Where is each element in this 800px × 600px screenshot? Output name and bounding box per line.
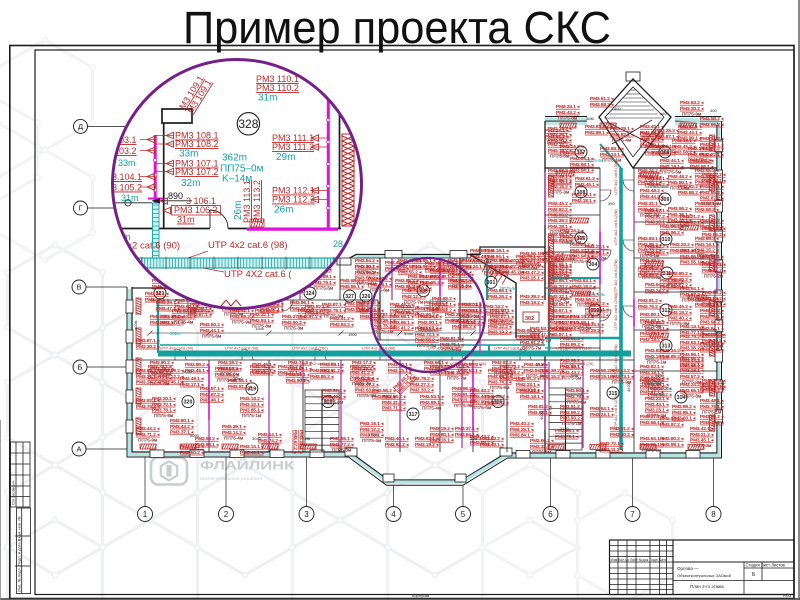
svg-text:PM3.53.2 ◂: PM3.53.2 ◂ (462, 258, 486, 263)
svg-text:PM3.15.2 ◂: PM3.15.2 ◂ (570, 314, 594, 319)
svg-text:PM3.85.2 ◂: PM3.85.2 ◂ (310, 374, 334, 379)
svg-text:Пример проекта СКС: Пример проекта СКС (183, 2, 611, 53)
svg-text:PM3.16.2 ◂: PM3.16.2 ◂ (680, 248, 704, 253)
svg-text:PM3.96.2 ◂: PM3.96.2 ◂ (356, 306, 380, 311)
svg-text:PM3.95.1 ◂: PM3.95.1 ◂ (340, 284, 364, 289)
svg-text:PM3.91.2 ◂: PM3.91.2 ◂ (520, 340, 544, 345)
svg-text:А: А (76, 445, 81, 454)
svg-text:4020: 4020 (720, 380, 725, 390)
svg-text:PM3.57.1 ◂: PM3.57.1 ◂ (645, 208, 669, 213)
svg-text:PM3.85.2 ◂: PM3.85.2 ◂ (395, 278, 419, 283)
svg-text:PM3.94.2 ◂: PM3.94.2 ◂ (190, 308, 214, 313)
svg-text:PM3.90.2 ◂: PM3.90.2 ◂ (185, 362, 209, 367)
svg-text:PM3.92.2 ◂: PM3.92.2 ◂ (412, 264, 436, 269)
svg-text:327: 327 (345, 294, 354, 300)
svg-text:PM3.12.1 ◂: PM3.12.1 ◂ (548, 270, 572, 275)
svg-text:PM3.18.1 ◂: PM3.18.1 ◂ (672, 138, 696, 143)
svg-text:PM3.82.1 ◂: PM3.82.1 ◂ (572, 192, 596, 197)
svg-text:PM3.68.2 ◂: PM3.68.2 ◂ (678, 190, 702, 195)
svg-text:PM3.25.1 ◂: PM3.25.1 ◂ (520, 276, 544, 281)
svg-text:PM3.54.2 ◂: PM3.54.2 ◂ (355, 258, 379, 263)
svg-text:362m: 362m (222, 153, 247, 164)
svg-text:PM3 110.2: PM3 110.2 (256, 83, 299, 93)
svg-text:PM3.12.2 ◂: PM3.12.2 ◂ (488, 324, 512, 329)
svg-text:PM3.33.1 ◂: PM3.33.1 ◂ (530, 444, 554, 449)
svg-text:PM3.45.2 ◂: PM3.45.2 ◂ (672, 144, 696, 149)
svg-text:PM3.30.2 ◂: PM3.30.2 ◂ (610, 432, 634, 437)
svg-text:PM3.66.1 ◂: PM3.66.1 ◂ (645, 144, 669, 149)
svg-text:PM3.94.1 ◂: PM3.94.1 ◂ (524, 368, 548, 373)
svg-text:PM3.99.2 ◂: PM3.99.2 ◂ (560, 410, 584, 415)
svg-text:ПП75-6м: ПП75-6м (704, 344, 723, 349)
svg-text:PM3.86.1 ◂: PM3.86.1 ◂ (488, 258, 512, 263)
svg-text:PM3.60.2 ◂: PM3.60.2 ◂ (282, 320, 306, 325)
svg-text:ПП75-8м: ПП75-8м (152, 372, 171, 377)
svg-text:PM3.91.2 ◂: PM3.91.2 ◂ (638, 298, 662, 303)
svg-text:PM3.23.1 ◂: PM3.23.1 ◂ (645, 408, 669, 413)
svg-text:PM3.82.1 ◂: PM3.82.1 ◂ (645, 348, 669, 353)
svg-text:PM3.66.2 ◂: PM3.66.2 ◂ (530, 438, 554, 443)
svg-text:PM3.64.1 ◂: PM3.64.1 ◂ (640, 137, 664, 142)
svg-text:4: 4 (391, 510, 396, 519)
svg-text:PM3.57.2 ◂: PM3.57.2 ◂ (680, 374, 704, 379)
svg-text:План 2-го этажа: План 2-го этажа (690, 584, 724, 589)
svg-text:PM3.22.2 ◂: PM3.22.2 ◂ (702, 172, 726, 177)
svg-text:7МБ: 7МБ (570, 373, 579, 378)
svg-text:PM3.46.2 ◂: PM3.46.2 ◂ (390, 302, 414, 307)
svg-text:PM3.96.1 ◂: PM3.96.1 ◂ (290, 300, 314, 305)
svg-text:PM3.93.1 ◂: PM3.93.1 ◂ (600, 146, 624, 151)
svg-text:26m: 26m (274, 205, 293, 216)
svg-text:328: 328 (238, 117, 258, 131)
svg-text:ПП75-3м: ПП75-3м (284, 326, 303, 331)
svg-text:PM3.61.2 ◂: PM3.61.2 ◂ (575, 176, 599, 181)
svg-text:PM3.24.1 ◂: PM3.24.1 ◂ (545, 128, 569, 133)
svg-text:5460: 5460 (655, 373, 665, 378)
svg-text:PM3.60.2 ◂: PM3.60.2 ◂ (415, 312, 439, 317)
svg-text:27А0: 27А0 (536, 362, 546, 367)
svg-text:315: 315 (609, 391, 618, 397)
svg-text:PM3.39.1 ◂: PM3.39.1 ◂ (222, 424, 246, 429)
svg-text:PM3.90.2 ◂: PM3.90.2 ◂ (150, 360, 174, 365)
svg-text:PM3.32.1 ◂: PM3.32.1 ◂ (570, 248, 594, 253)
svg-text:K-14m: K-14m (420, 328, 433, 333)
svg-text:ПП75-4м: ПП75-4м (702, 201, 721, 206)
svg-text:PM3.57.1 ◂: PM3.57.1 ◂ (458, 302, 482, 307)
svg-text:4о20: 4о20 (626, 382, 631, 392)
svg-text:ПП75-2м: ПП75-2м (357, 270, 376, 275)
svg-text:UTP 4X2 cat.6 (: UTP 4X2 cat.6 ( (224, 269, 292, 280)
svg-text:PM3.82.1 ◂: PM3.82.1 ◂ (640, 364, 664, 369)
svg-text:В: В (76, 283, 81, 292)
svg-text:PM3.23.1 ◂: PM3.23.1 ◂ (516, 382, 540, 387)
svg-text:PM3.15.2 ◂: PM3.15.2 ◂ (488, 318, 512, 323)
svg-text:PM3.27.2 ◂: PM3.27.2 ◂ (410, 382, 434, 387)
svg-text:PM3.69.1 ◂: PM3.69.1 ◂ (420, 400, 444, 405)
svg-text:ПП75-8м: ПП75-8м (572, 326, 591, 331)
svg-text:PM3.51.2 ◂: PM3.51.2 ◂ (590, 96, 614, 101)
svg-text:PM3.65.1 ◂: PM3.65.1 ◂ (680, 388, 704, 393)
svg-text:PM3.78.1 ◂: PM3.78.1 ◂ (322, 308, 346, 313)
svg-text:PM3.67.2 ◂: PM3.67.2 ◂ (585, 301, 609, 306)
svg-text:400: 400 (710, 108, 717, 113)
svg-text:Стадия Лист Листов: Стадия Лист Листов (746, 563, 786, 568)
svg-text:PM3.74.2 ◂: PM3.74.2 ◂ (288, 360, 312, 365)
svg-text:ПП75-6м: ПП75-6м (642, 448, 661, 453)
svg-text:PM3.48.2 ◂: PM3.48.2 ◂ (668, 174, 692, 179)
svg-text:PM3.53.2 ◂: PM3.53.2 ◂ (702, 296, 726, 301)
svg-text:PM3.45.1 ◂: PM3.45.1 ◂ (690, 438, 714, 443)
svg-text:Изм Кол.уч Лист №док Подп Дата: Изм Кол.уч Лист №док Подп Дата (611, 558, 667, 562)
svg-text:PM3.45.1 ◂: PM3.45.1 ◂ (575, 182, 599, 187)
svg-text:PM3.63.1 ◂: PM3.63.1 ◂ (672, 416, 696, 421)
svg-text:PM3.31.1 ◂: PM3.31.1 ◂ (445, 318, 469, 323)
svg-text:PM3.61.2 ◂: PM3.61.2 ◂ (545, 134, 569, 139)
svg-text:PM3.73.2 ◂: PM3.73.2 ◂ (136, 404, 160, 409)
svg-text:PM3.64.2 ◂: PM3.64.2 ◂ (702, 178, 726, 183)
svg-text:PM3.19.1 ◂: PM3.19.1 ◂ (560, 364, 584, 369)
svg-text:1300: 1300 (560, 296, 570, 301)
svg-text:PM3.99.2 ◂: PM3.99.2 ◂ (702, 290, 726, 295)
svg-text:PM3 112.2: PM3 112.2 (272, 195, 315, 205)
svg-text:PM3.22.2 ◂: PM3.22.2 ◂ (680, 220, 704, 225)
svg-text:PM3.66.1 ◂: PM3.66.1 ◂ (255, 308, 279, 313)
svg-text:PM3.34.2 ◂: PM3.34.2 ◂ (356, 300, 380, 305)
svg-text:PM3.99.2 ◂: PM3.99.2 ◂ (560, 342, 584, 347)
svg-text:ПП75-13,5м: ПП75-13,5м (648, 386, 671, 391)
svg-text:PM3.95.2 ◂: PM3.95.2 ◂ (645, 250, 669, 255)
svg-text:3040: 3040 (252, 436, 262, 441)
svg-text:PM3.30.2 ◂: PM3.30.2 ◂ (136, 344, 160, 349)
svg-text:PM3.58.2 ◂: PM3.58.2 ◂ (672, 150, 696, 155)
svg-text:PM3.68.2 ◂: PM3.68.2 ◂ (702, 332, 726, 337)
svg-text:PM3.65.1 ◂: PM3.65.1 ◂ (390, 320, 414, 325)
svg-text:ПП75-4м: ПП75-4м (612, 138, 631, 143)
svg-text:PM3.24.2 ◂: PM3.24.2 ◂ (645, 288, 669, 293)
svg-text:PM3.40.1 ◂: PM3.40.1 ◂ (385, 436, 409, 441)
svg-text:PM3 113.2: PM3 113.2 (252, 180, 262, 223)
svg-text:6: 6 (548, 510, 553, 519)
svg-text:ПП75-5м: ПП75-5м (662, 170, 681, 175)
svg-text:PM3.81.2 ◂: PM3.81.2 ◂ (452, 392, 476, 397)
svg-text:PM3.18.1 ◂: PM3.18.1 ◂ (572, 198, 596, 203)
svg-text:PM3.37.2 ◂: PM3.37.2 ◂ (640, 414, 664, 419)
svg-text:Корпусая: Корпусая (412, 593, 429, 598)
svg-text:PM3.77.1 ◂: PM3.77.1 ◂ (680, 330, 704, 335)
svg-text:UTP 4x2 cat.6 (98): UTP 4x2 cat.6 (98) (225, 346, 259, 351)
svg-text:PM3.16.2 ◂: PM3.16.2 ◂ (548, 184, 572, 189)
svg-text:PM3.87.2 ◂: PM3.87.2 ◂ (700, 146, 724, 151)
svg-text:PM3.44.2 ◂: PM3.44.2 ◂ (136, 426, 160, 431)
svg-text:PM3.79.1 ◂: PM3.79.1 ◂ (516, 254, 540, 259)
svg-text:PM3.62.2 ◂: PM3.62.2 ◂ (645, 244, 669, 249)
svg-text:PM3.58.2 ◂: PM3.58.2 ◂ (590, 102, 614, 107)
svg-text:PM3.77.2 ◂: PM3.77.2 ◂ (330, 442, 354, 447)
svg-text:7: 7 (630, 510, 635, 519)
svg-text:ПП75-7м: ПП75-7м (442, 348, 461, 353)
svg-text:PM3.84.2 ◂: PM3.84.2 ◂ (330, 322, 354, 327)
svg-text:ПП75-6м: ПП75-6м (202, 334, 221, 339)
svg-text:PM3.29.1 ◂: PM3.29.1 ◂ (156, 300, 180, 305)
svg-text:PM3.66.2 ◂: PM3.66.2 ◂ (290, 306, 314, 311)
svg-text:PM3.62.2 ◂: PM3.62.2 ◂ (385, 442, 409, 447)
svg-text:PM3.71.2 ◂: PM3.71.2 ◂ (136, 432, 160, 437)
svg-text:PM3.69.2 ◂: PM3.69.2 ◂ (368, 276, 392, 281)
svg-text:317: 317 (409, 412, 418, 418)
svg-text:PM3.62.1 ◂: PM3.62.1 ◂ (678, 124, 702, 129)
svg-text:PM3.96.1 ◂: PM3.96.1 ◂ (680, 352, 704, 357)
svg-text:PM3.31.1 ◂: PM3.31.1 ◂ (638, 201, 662, 206)
svg-text:PM3.87.2 ◂: PM3.87.2 ◂ (700, 196, 724, 201)
svg-text:ПП75-3м: ПП75-3м (224, 312, 243, 317)
svg-text:PM3.26.2 ◂: PM3.26.2 ◂ (570, 242, 594, 247)
svg-text:PM3.93.1 ◂: PM3.93.1 ◂ (645, 176, 669, 181)
svg-text:ПП75-9м: ПП75-9м (490, 385, 509, 390)
svg-text:PM3.47.1 ◂: PM3.47.1 ◂ (585, 307, 609, 312)
svg-text:PM3 111.2: PM3 111.2 (272, 142, 314, 152)
svg-text:Орлова —: Орлова — (677, 566, 699, 571)
svg-text:ПП75-8м: ПП75-8м (324, 314, 343, 319)
svg-text:PM3.21.2 ◂: PM3.21.2 ◂ (690, 432, 714, 437)
svg-text:PM3.94.2 ◂: PM3.94.2 ◂ (702, 268, 726, 273)
svg-text:3: 3 (304, 510, 309, 519)
svg-text:ПП75-4м: ПП75-4м (224, 436, 243, 441)
svg-text:PM3.63.2 ◂: PM3.63.2 ◂ (680, 100, 704, 105)
svg-text:1900: 1900 (348, 332, 358, 337)
svg-text:PM3.29.2 ◂: PM3.29.2 ◂ (150, 366, 174, 371)
svg-text:PM3.94.2 ◂: PM3.94.2 ◂ (680, 364, 704, 369)
svg-text:320: 320 (184, 399, 193, 405)
svg-text:PM3.14.2 ◂: PM3.14.2 ◂ (610, 368, 634, 373)
svg-text:PM3.52.2 ◂: PM3.52.2 ◂ (180, 444, 204, 449)
svg-text:PM3.69.1 ◂: PM3.69.1 ◂ (288, 366, 312, 371)
svg-text:PM3.84.1 ◂: PM3.84.1 ◂ (700, 326, 724, 331)
svg-text:PM3.42.1 ◂: PM3.42.1 ◂ (424, 306, 448, 311)
svg-text:PM3.74.2 ◂: PM3.74.2 ◂ (390, 308, 414, 313)
svg-text:PM3.68.2 ◂: PM3.68.2 ◂ (548, 168, 572, 173)
svg-text:PM3.20.2 ◂: PM3.20.2 ◂ (645, 150, 669, 155)
svg-text:PM3.43.2 ◂: PM3.43.2 ◂ (170, 424, 194, 429)
svg-text:PM3.94.1 ◂: PM3.94.1 ◂ (570, 254, 594, 259)
svg-text:PM3.23.1 ◂: PM3.23.1 ◂ (448, 278, 472, 283)
svg-text:5ооо: 5ооо (404, 331, 414, 336)
svg-text:PM3.35.2 ◂: PM3.35.2 ◂ (420, 280, 444, 285)
svg-text:3.105.2: 3.105.2 (112, 183, 142, 193)
svg-text:PM3.56.2 ◂: PM3.56.2 ◂ (382, 394, 406, 399)
svg-text:31m: 31m (258, 93, 277, 104)
svg-text:PM3.40.2 ◂: PM3.40.2 ◂ (510, 421, 534, 426)
svg-text:PM3.34.1 ◂: PM3.34.1 ◂ (462, 264, 486, 269)
svg-text:о60: о60 (660, 111, 667, 116)
svg-text:PM3.77.2 ◂: PM3.77.2 ◂ (540, 251, 564, 256)
svg-text:PM3.21.2 ◂: PM3.21.2 ◂ (640, 270, 664, 275)
svg-text:UTP 4x2 cat.6 (98): UTP 4x2 cat.6 (98) (208, 240, 288, 251)
svg-text:ПП75-8м: ПП75-8м (558, 116, 577, 121)
svg-text:3.104.1: 3.104.1 (112, 172, 142, 182)
svg-text:ПП75-4м: ПП75-4м (490, 270, 509, 275)
svg-text:PM3.55.1 ◂: PM3.55.1 ◂ (680, 260, 704, 265)
svg-text:362m: 362m (170, 331, 181, 336)
svg-text:PM3.24.2 ◂: PM3.24.2 ◂ (700, 308, 724, 313)
svg-text:PM3.51.1 ◂: PM3.51.1 ◂ (700, 254, 724, 259)
svg-text:PM3.90.1 ◂: PM3.90.1 ◂ (418, 320, 442, 325)
svg-text:ПП75-8м: ПП75-8м (682, 394, 701, 399)
svg-text:UTP 4x2 cat.6 (2№): UTP 4x2 cat.6 (2№) (613, 209, 618, 245)
svg-text:PM3.14.1 ◂: PM3.14.1 ◂ (258, 432, 282, 437)
svg-text:PM3.92.1 ◂: PM3.92.1 ◂ (322, 388, 346, 393)
svg-text:PM3.85.1 ◂: PM3.85.1 ◂ (240, 408, 264, 413)
svg-text:PM3.22.2 ◂: PM3.22.2 ◂ (548, 142, 572, 147)
svg-text:PM3.53.2 ◂: PM3.53.2 ◂ (484, 310, 508, 315)
svg-text:PM3.18.1 ◂: PM3.18.1 ◂ (680, 368, 704, 373)
svg-text:и02м: и02м (133, 320, 138, 330)
svg-text:ПП75-5м: ПП75-5м (500, 286, 517, 291)
svg-text:ПП75-4м: ПП75-4м (422, 406, 441, 411)
svg-text:PM3.64.2 ◂: PM3.64.2 ◂ (540, 257, 564, 262)
svg-text:PM3.13.1 ◂: PM3.13.1 ◂ (600, 152, 624, 157)
svg-text:PM3.19.2 ◂: PM3.19.2 ◂ (668, 310, 692, 315)
svg-text:PM3.39.2 ◂: PM3.39.2 ◂ (548, 218, 572, 223)
svg-text:PM3.61.2 ◂: PM3.61.2 ◂ (548, 326, 572, 331)
svg-text:PM3.44.1 ◂: PM3.44.1 ◂ (200, 328, 224, 333)
svg-text:ПП75-7м: ПП75-7м (494, 372, 513, 377)
svg-text:PM3.24.1 ◂: PM3.24.1 ◂ (590, 412, 614, 417)
svg-text:PM3.44.2 ◂: PM3.44.2 ◂ (640, 194, 664, 199)
svg-text:PM3.28.2 ◂: PM3.28.2 ◂ (150, 314, 174, 319)
svg-text:PM3.34.1 ◂: PM3.34.1 ◂ (150, 320, 174, 325)
svg-text:PM3.29.1 ◂: PM3.29.1 ◂ (610, 126, 634, 131)
svg-text:ПП75-10м: ПП75-10м (585, 292, 605, 297)
svg-text:PM3 108.2: PM3 108.2 (175, 139, 219, 149)
svg-text:PM3.23.2 ◂: PM3.23.2 ◂ (352, 366, 376, 371)
svg-text:PM3.92.2 ◂: PM3.92.2 ◂ (548, 207, 572, 212)
svg-text:PM3.91.2 ◂: PM3.91.2 ◂ (610, 426, 634, 431)
svg-text:PM3.62.1 ◂: PM3.62.1 ◂ (415, 436, 439, 441)
svg-text:PM3.58.2 ◂: PM3.58.2 ◂ (448, 284, 472, 289)
svg-text:UTP 4x2 cat.6 (200): UTP 4x2 cat.6 (200) (292, 346, 328, 351)
svg-text:PM3.46.1 ◂: PM3.46.1 ◂ (200, 398, 224, 403)
svg-text:PM3.86.1 ◂: PM3.86.1 ◂ (700, 184, 724, 189)
svg-text:ПП75-1м: ПП75-1м (430, 298, 447, 303)
svg-text:PM3.45.2 ◂: PM3.45.2 ◂ (668, 304, 692, 309)
svg-text:PM3.31.2 ◂: PM3.31.2 ◂ (382, 400, 406, 405)
svg-text:PM3.19.2 ◂: PM3.19.2 ◂ (488, 330, 512, 335)
svg-text:PM3.82.2 ◂: PM3.82.2 ◂ (610, 132, 634, 137)
svg-text:PM3.66.1 ◂: PM3.66.1 ◂ (690, 164, 714, 169)
svg-text:PM3.40.2 ◂: PM3.40.2 ◂ (668, 316, 692, 321)
svg-text:PM3.94.1 ◂: PM3.94.1 ◂ (570, 168, 594, 173)
svg-text:PM3.53.1 ◂: PM3.53.1 ◂ (420, 394, 444, 399)
svg-text:PM3.63.1 ◂: PM3.63.1 ◂ (572, 278, 596, 283)
svg-text:PM3.26.2 ◂: PM3.26.2 ◂ (488, 294, 512, 299)
svg-text:PM3.80.2 ◂: PM3.80.2 ◂ (668, 271, 692, 276)
svg-text:PM3.47.1 ◂: PM3.47.1 ◂ (156, 306, 180, 311)
svg-text:PM3 107.2: PM3 107.2 (175, 167, 219, 177)
svg-text:PM3.63.1 ◂: PM3.63.1 ◂ (355, 388, 379, 393)
svg-text:PM3.37.1 ◂: PM3.37.1 ◂ (455, 426, 479, 431)
svg-text:PM3.21.2 ◂: PM3.21.2 ◂ (680, 214, 704, 219)
svg-text:ПП75-2м: ПП75-2м (704, 274, 723, 279)
svg-text:Инв. № подл. Подп. и дата: Инв. № подл. Подп. и дата Взам. инв. № (17, 517, 22, 592)
svg-text:PM3.13.1 ◂: PM3.13.1 ◂ (680, 324, 704, 329)
svg-text:ПП75-7м: ПП75-7м (522, 346, 541, 351)
svg-text:ПП75-9м: ПП75-9м (682, 112, 701, 117)
svg-text:PM3.14.2 ◂: PM3.14.2 ◂ (222, 430, 246, 435)
svg-text:PM3.45.1 ◂: PM3.45.1 ◂ (160, 380, 184, 385)
svg-text:PM3.49.2 ◂: PM3.49.2 ◂ (322, 394, 346, 399)
svg-text:PM3.67.1 ◂: PM3.67.1 ◂ (548, 308, 572, 313)
svg-text:PM3.47.2 ◂: PM3.47.2 ◂ (520, 270, 544, 275)
svg-text:PM3.53.1 ◂: PM3.53.1 ◂ (458, 368, 482, 373)
svg-text:PM3.16.1 ◂: PM3.16.1 ◂ (695, 242, 719, 247)
svg-text:PM3.68.2 ◂: PM3.68.2 ◂ (695, 207, 719, 212)
svg-text:PM3.81.1 ◂: PM3.81.1 ◂ (702, 226, 726, 231)
svg-text:UTP 4x2 cat.6 (2№): UTP 4x2 cat.6 (2№) (613, 159, 618, 195)
svg-text:PM3.56.1 ◂: PM3.56.1 ◂ (548, 302, 572, 307)
svg-text:№ 28м: № 28м (652, 392, 665, 397)
svg-text:PM3.87.1 ◂: PM3.87.1 ◂ (136, 338, 160, 343)
svg-text:PM3.41.2 ◂: PM3.41.2 ◂ (390, 326, 414, 331)
svg-text:PM3.97.1 ◂: PM3.97.1 ◂ (548, 332, 572, 337)
svg-text:8: 8 (711, 510, 716, 519)
svg-text:ПП75-9м: ПП75-9м (232, 320, 251, 325)
svg-text:PM3.76.1 ◂: PM3.76.1 ◂ (458, 308, 482, 313)
svg-text:PM3.67.2 ◂: PM3.67.2 ◂ (293, 430, 298, 454)
svg-text:5000: 5000 (190, 433, 200, 438)
svg-text:37МБ: 37МБ (368, 432, 379, 437)
svg-text:PM3.80.1 ◂: PM3.80.1 ◂ (170, 418, 194, 423)
svg-text:ПП75-6м: ПП75-6м (572, 259, 591, 264)
svg-text:PM3.43.2 ◂: PM3.43.2 ◂ (556, 110, 580, 115)
svg-text:PM3.94.1 ◂: PM3.94.1 ◂ (548, 320, 572, 325)
svg-text:Аб3: Аб3 (783, 593, 792, 598)
svg-text:ПП75-5м: ПП75-5м (314, 286, 333, 291)
svg-text:ПП75-8м: ПП75-8м (532, 450, 551, 455)
svg-text:PM3.18.1 ◂: PM3.18.1 ◂ (645, 220, 669, 225)
svg-text:PM3.51.2 ◂: PM3.51.2 ◂ (320, 368, 344, 373)
svg-text:PM3.21.2 ◂: PM3.21.2 ◂ (452, 398, 476, 403)
svg-text:4020: 4020 (539, 410, 544, 420)
svg-text:7МБ: 7МБ (300, 377, 309, 382)
svg-text:UTP 4x2 cat.6 (2№): UTP 4x2 cat.6 (2№) (613, 259, 618, 295)
svg-text:PM3.49.1 ◂: PM3.49.1 ◂ (180, 376, 204, 381)
svg-text:PM3.81.2 ◂: PM3.81.2 ◂ (585, 124, 609, 129)
svg-text:PM3.71.2 ◂: PM3.71.2 ◂ (382, 406, 406, 411)
svg-text:PM3.97.2 ◂: PM3.97.2 ◂ (298, 314, 322, 319)
svg-text:PM3.76.1 ◂: PM3.76.1 ◂ (440, 342, 464, 347)
svg-text:PM3.93.1 ◂: PM3.93.1 ◂ (250, 318, 274, 323)
svg-text:PM3.18.1 ◂: PM3.18.1 ◂ (645, 326, 669, 331)
svg-text:26m: 26m (233, 201, 244, 220)
svg-text:PM3.25.2 ◂: PM3.25.2 ◂ (485, 394, 509, 399)
svg-text:33m: 33m (560, 348, 569, 353)
svg-text:PM3.74.2 ◂: PM3.74.2 ◂ (258, 438, 282, 443)
svg-text:PM3.78.1 ◂: PM3.78.1 ◂ (565, 394, 589, 399)
svg-text:32m: 32m (181, 178, 200, 189)
svg-text:PM3.92.1 ◂: PM3.92.1 ◂ (136, 398, 160, 403)
svg-text:PM3.11.2 ◂: PM3.11.2 ◂ (600, 447, 624, 452)
svg-text:PM3.68.2 ◂: PM3.68.2 ◂ (340, 278, 364, 283)
svg-text:400: 400 (614, 106, 621, 111)
svg-text:ПП75-3м: ПП75-3м (526, 374, 545, 379)
svg-text:ПП75-3м: ПП75-3м (550, 230, 569, 235)
svg-text:PM3.87.2 ◂: PM3.87.2 ◂ (680, 292, 704, 297)
svg-text:PM3.69.2 ◂: PM3.69.2 ◂ (218, 366, 242, 371)
svg-text:2: 2 (224, 510, 229, 519)
svg-text:33m: 33m (118, 158, 136, 168)
svg-text:Г: Г (78, 204, 82, 213)
svg-text:PM3.22.1 ◂: PM3.22.1 ◂ (700, 152, 724, 157)
